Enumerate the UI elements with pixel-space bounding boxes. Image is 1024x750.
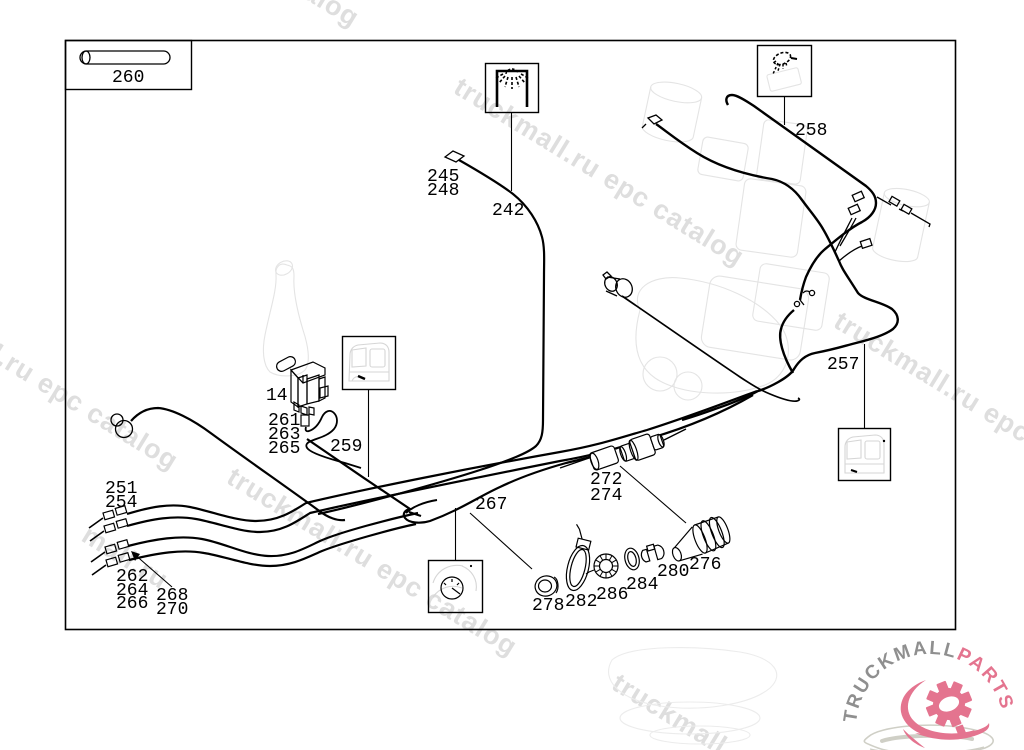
svg-text:270: 270: [156, 600, 188, 620]
svg-text:259: 259: [330, 437, 362, 457]
svg-text:282: 282: [565, 592, 597, 612]
svg-text:265: 265: [268, 439, 300, 459]
svg-text:14: 14: [266, 386, 288, 406]
svg-text:286: 286: [596, 585, 628, 605]
svg-text:274: 274: [590, 486, 622, 506]
svg-text:276: 276: [689, 555, 721, 575]
svg-text:280: 280: [657, 562, 689, 582]
svg-text:248: 248: [427, 181, 459, 201]
svg-text:242: 242: [492, 201, 524, 221]
svg-text:284: 284: [626, 575, 658, 595]
svg-text:278: 278: [532, 596, 564, 616]
svg-text:266: 266: [116, 594, 148, 614]
svg-text:254: 254: [105, 493, 137, 513]
svg-text:260: 260: [112, 68, 144, 88]
svg-text:257: 257: [827, 355, 859, 375]
